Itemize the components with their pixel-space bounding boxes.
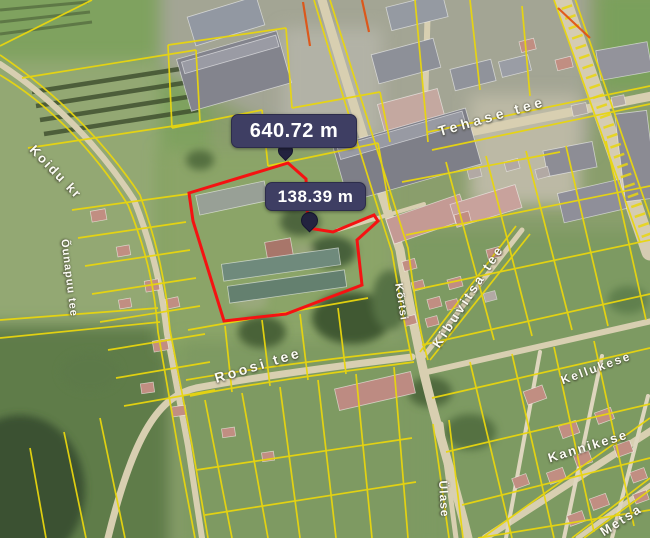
measurement-badge-segment: 138.39 m: [265, 182, 366, 211]
cadastral-parcel-lines: [0, 0, 650, 538]
map-overlays-layer: [0, 0, 650, 538]
map-canvas[interactable]: Tehase tee Koidu kr Õunapuu tee Roosi te…: [0, 0, 650, 538]
measurement-badge-total: 640.72 m: [231, 114, 357, 148]
measurement-value: 138.39 m: [278, 187, 354, 207]
measurement-value: 640.72 m: [250, 120, 339, 143]
special-boundary-lines: [303, 0, 590, 46]
